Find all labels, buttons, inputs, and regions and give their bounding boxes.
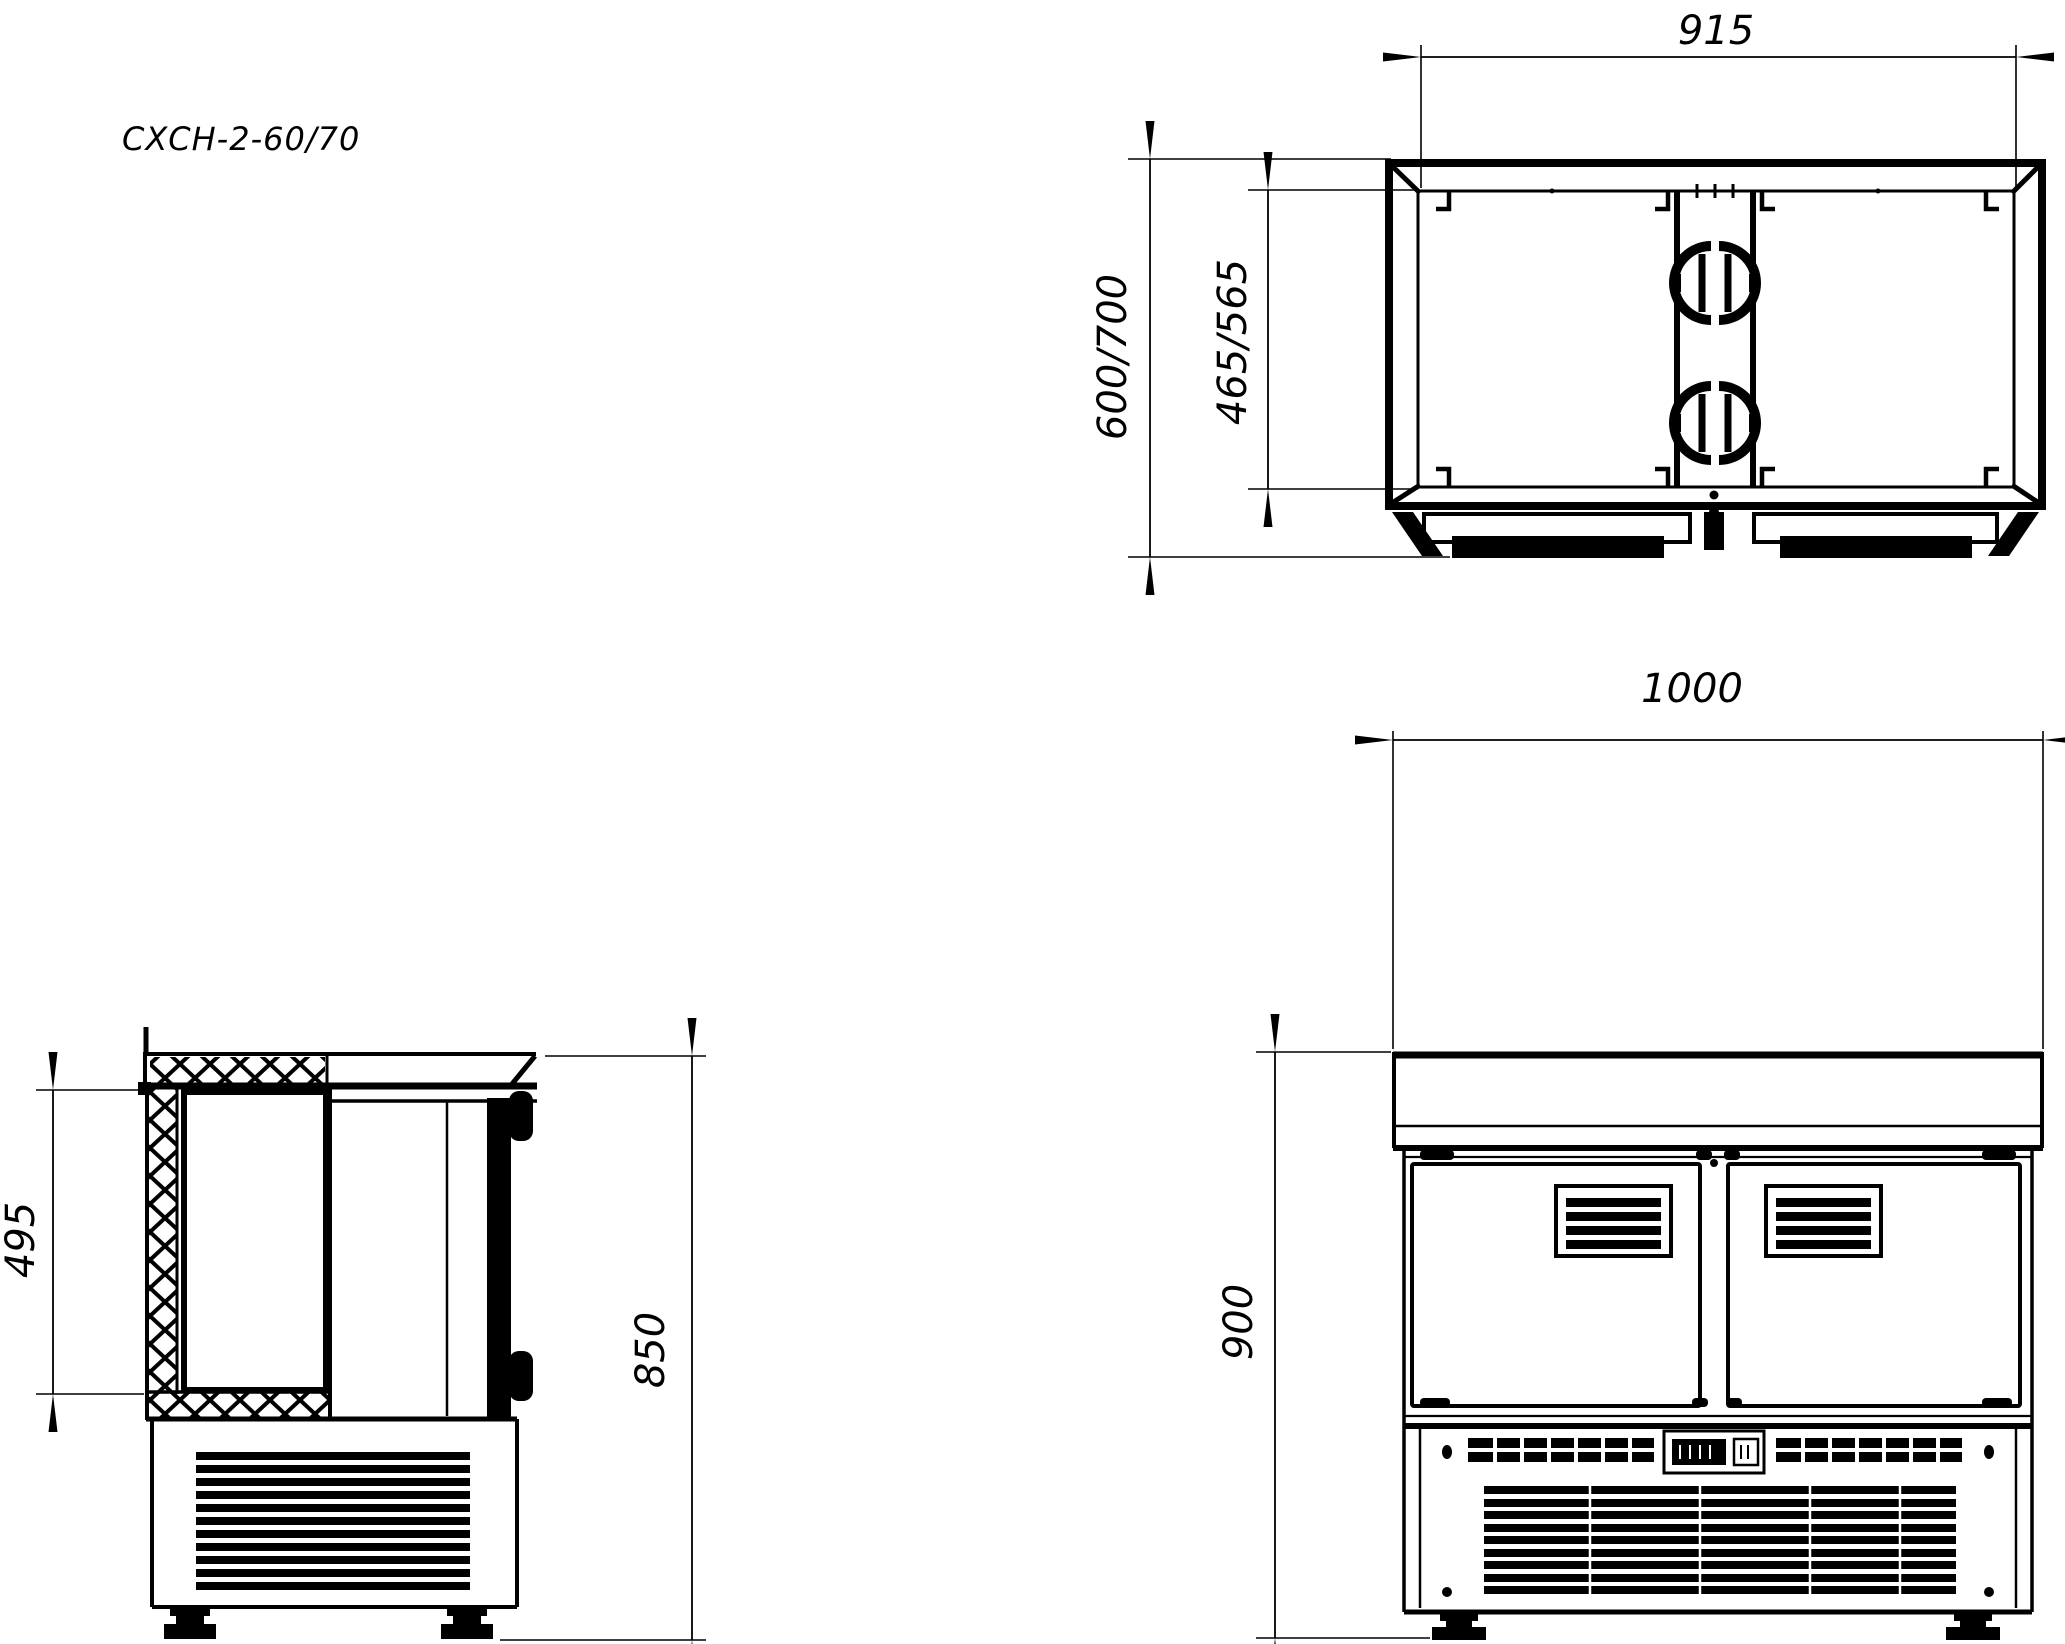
dim-label: 850: [628, 1312, 674, 1388]
control-panel: [1664, 1431, 1764, 1473]
dim-label: 495: [0, 1202, 44, 1278]
dim-front-overall-height: 900: [1216, 1052, 1430, 1638]
vent-strip: [1468, 1436, 1654, 1464]
door-hinge: [509, 1351, 533, 1401]
louver-grille-front: [1484, 1484, 1956, 1596]
dim-label: 900: [1216, 1284, 1262, 1360]
vent-strip: [1776, 1436, 1962, 1464]
front-view: 1000 900: [1216, 666, 2043, 1640]
drawing-title: СХСН-2-60/70: [122, 120, 360, 158]
adjustable-foot: [164, 1607, 216, 1639]
control-button: [1734, 1439, 1758, 1465]
adjustable-foot: [441, 1607, 493, 1639]
door-side-profile: [487, 1098, 511, 1418]
technical-drawing: СХСН-2-60/70: [0, 0, 2065, 1644]
front-view-body: [1393, 1052, 2043, 1640]
side-view-body: [138, 1027, 537, 1639]
louver-grille-side: [196, 1452, 470, 1590]
adjustable-foot: [1432, 1612, 1486, 1640]
side-view: 495 850: [0, 1027, 706, 1640]
dim-label: 1000: [1641, 666, 1743, 712]
top-view-body: [1389, 160, 2042, 506]
dim-label: 915: [1678, 8, 1754, 54]
drawing-sheet: СХСН-2-60/70: [0, 0, 2065, 1644]
top-view-doors: [1392, 507, 2039, 558]
dim-label: 465/565: [1210, 259, 1256, 425]
dim-label: 600/700: [1090, 274, 1136, 440]
adjustable-foot: [1946, 1612, 2000, 1640]
door-vent-grille: [1556, 1186, 1671, 1256]
dim-side-chamber-height: 495: [0, 1090, 144, 1394]
dim-front-overall-width: 1000: [1393, 666, 2043, 1049]
dim-side-overall-height: 850: [500, 1056, 706, 1640]
door-hinge: [509, 1091, 533, 1141]
top-view: 915 600/700 465/565: [1090, 8, 2042, 558]
door-vent-grille: [1766, 1186, 1881, 1256]
